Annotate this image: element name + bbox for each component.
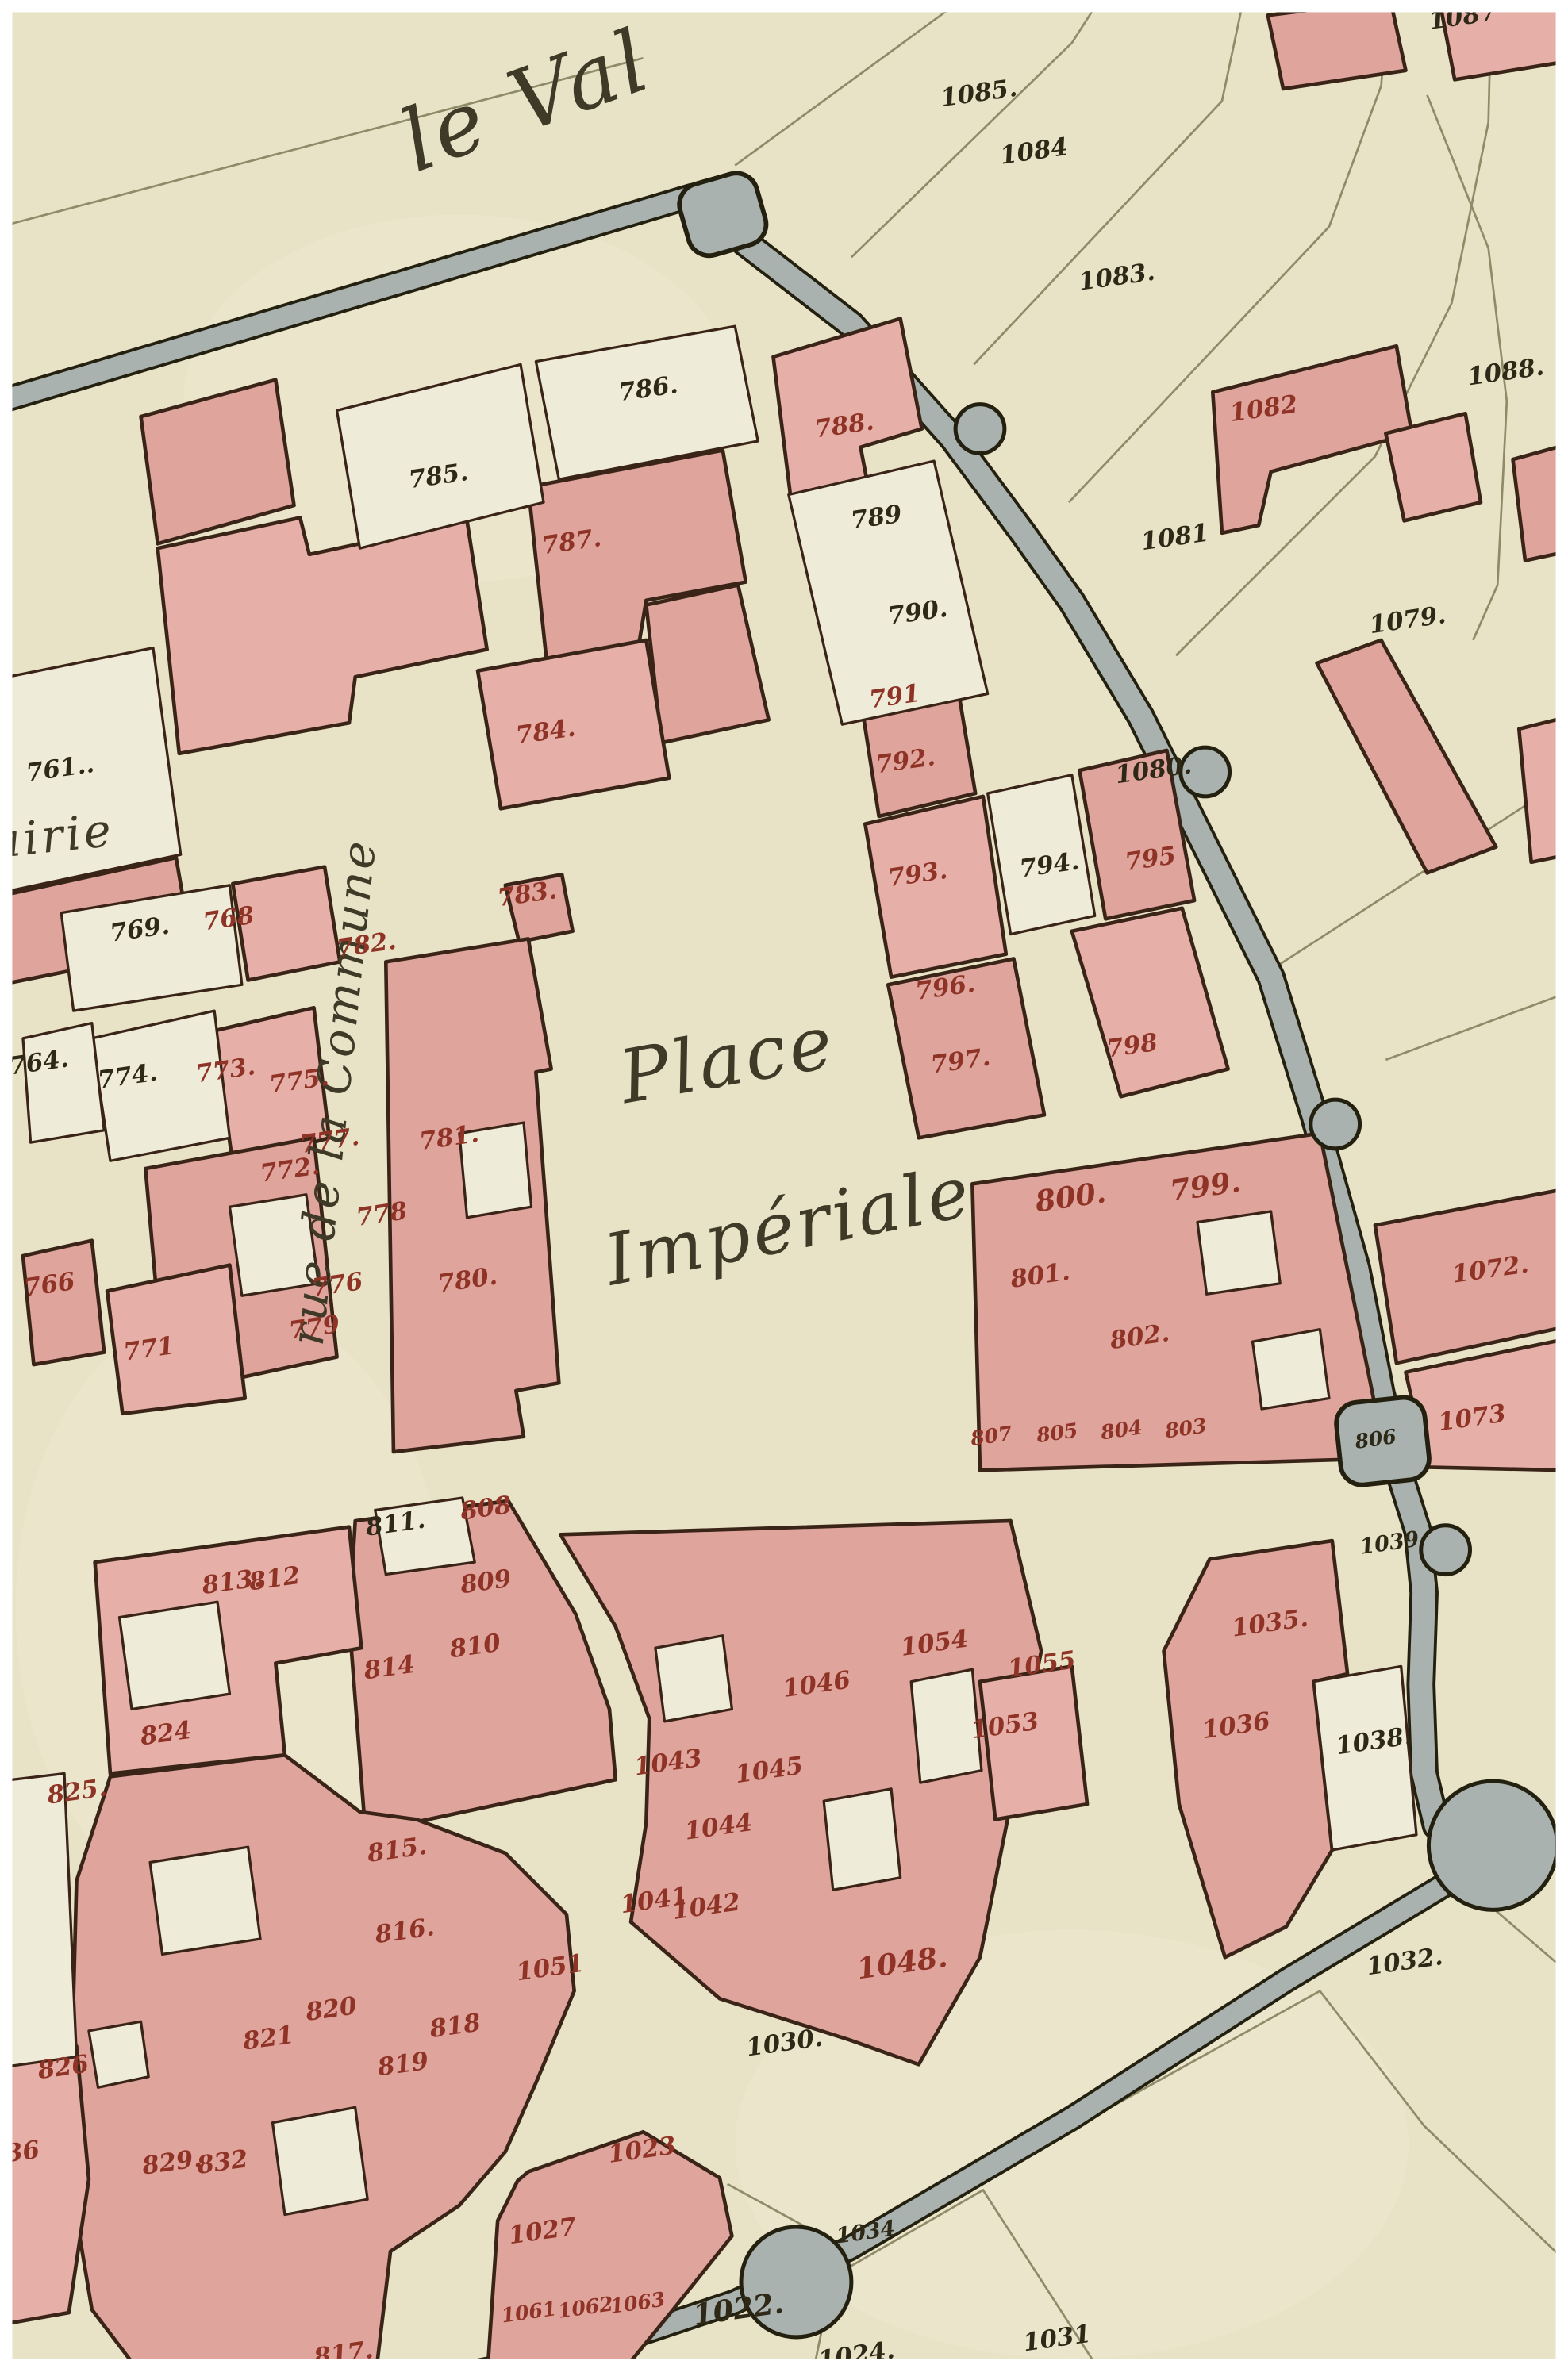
wall-tower-round <box>1421 1526 1470 1575</box>
courtyard-parcel <box>89 2021 148 2087</box>
courtyard-parcel <box>655 1636 732 1722</box>
courtyard-parcel <box>120 1602 230 1709</box>
building-polygon <box>1385 413 1481 520</box>
courtyard-parcel <box>824 1789 900 1890</box>
courtyard-parcel <box>23 1023 104 1143</box>
courtyard-parcel <box>150 1847 260 1954</box>
frame-border <box>0 0 12 2380</box>
wall-tower-round <box>955 405 1005 454</box>
cadastral-map-canvas: le ValPlaceImpérialerue de la Communeair… <box>0 0 1568 2380</box>
frame-border <box>1556 0 1568 2380</box>
frame-border <box>0 0 1568 12</box>
courtyard-parcel <box>1314 1666 1416 1850</box>
courtyard-parcel <box>1252 1330 1328 1409</box>
building-polygon <box>865 797 1006 977</box>
building-polygon <box>980 1666 1087 1819</box>
wall-tower-round <box>1311 1100 1360 1149</box>
wall-tower-round <box>1428 1781 1557 1910</box>
cadastral-map-page: le ValPlaceImpérialerue de la Communeair… <box>0 0 1568 2380</box>
frame-border <box>0 2359 1568 2380</box>
courtyard-parcel <box>1197 1211 1280 1294</box>
building-polygon <box>23 1241 104 1365</box>
courtyard-parcel <box>272 2107 367 2214</box>
